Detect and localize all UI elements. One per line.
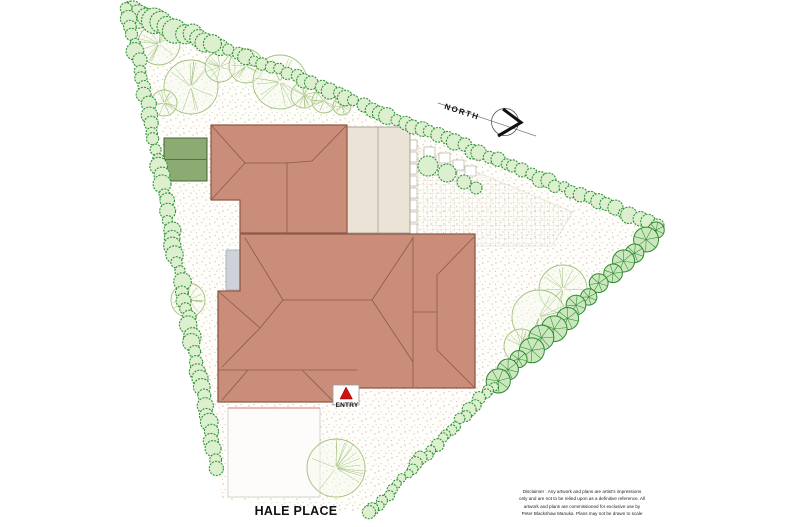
shrub bbox=[209, 461, 223, 475]
shrub bbox=[418, 156, 438, 176]
tree bbox=[307, 439, 365, 497]
annex-roof bbox=[347, 127, 410, 233]
shrub bbox=[405, 470, 413, 478]
site-plan-drawing bbox=[0, 0, 790, 527]
disclaimer-line: Peter Blackshaw Manuka. Plans may not be… bbox=[501, 510, 663, 517]
entry-label: ENTRY bbox=[326, 402, 368, 409]
shrub bbox=[470, 182, 482, 194]
disclaimer-line: artwork and plans are commissioned for e… bbox=[501, 503, 663, 510]
site-plan-canvas: NORTH ENTRY HALE PLACE Disclaimer : Any … bbox=[0, 0, 790, 527]
driveway bbox=[228, 408, 320, 497]
shrub bbox=[150, 144, 161, 155]
disclaimer-text: Disclaimer : Any artwork and plans are a… bbox=[501, 488, 663, 517]
disclaimer-line: only and are not to be relied upon as a … bbox=[501, 495, 663, 502]
shrub bbox=[362, 506, 375, 519]
shrub bbox=[223, 44, 234, 55]
shrub bbox=[457, 175, 471, 189]
disclaimer-line: Disclaimer : Any artwork and plans are a… bbox=[501, 488, 663, 495]
main-roof bbox=[218, 234, 475, 402]
garden-shed bbox=[164, 138, 207, 181]
shrub bbox=[203, 35, 221, 53]
shrub bbox=[438, 164, 456, 182]
shrub bbox=[147, 133, 159, 145]
street-label: HALE PLACE bbox=[232, 504, 360, 518]
